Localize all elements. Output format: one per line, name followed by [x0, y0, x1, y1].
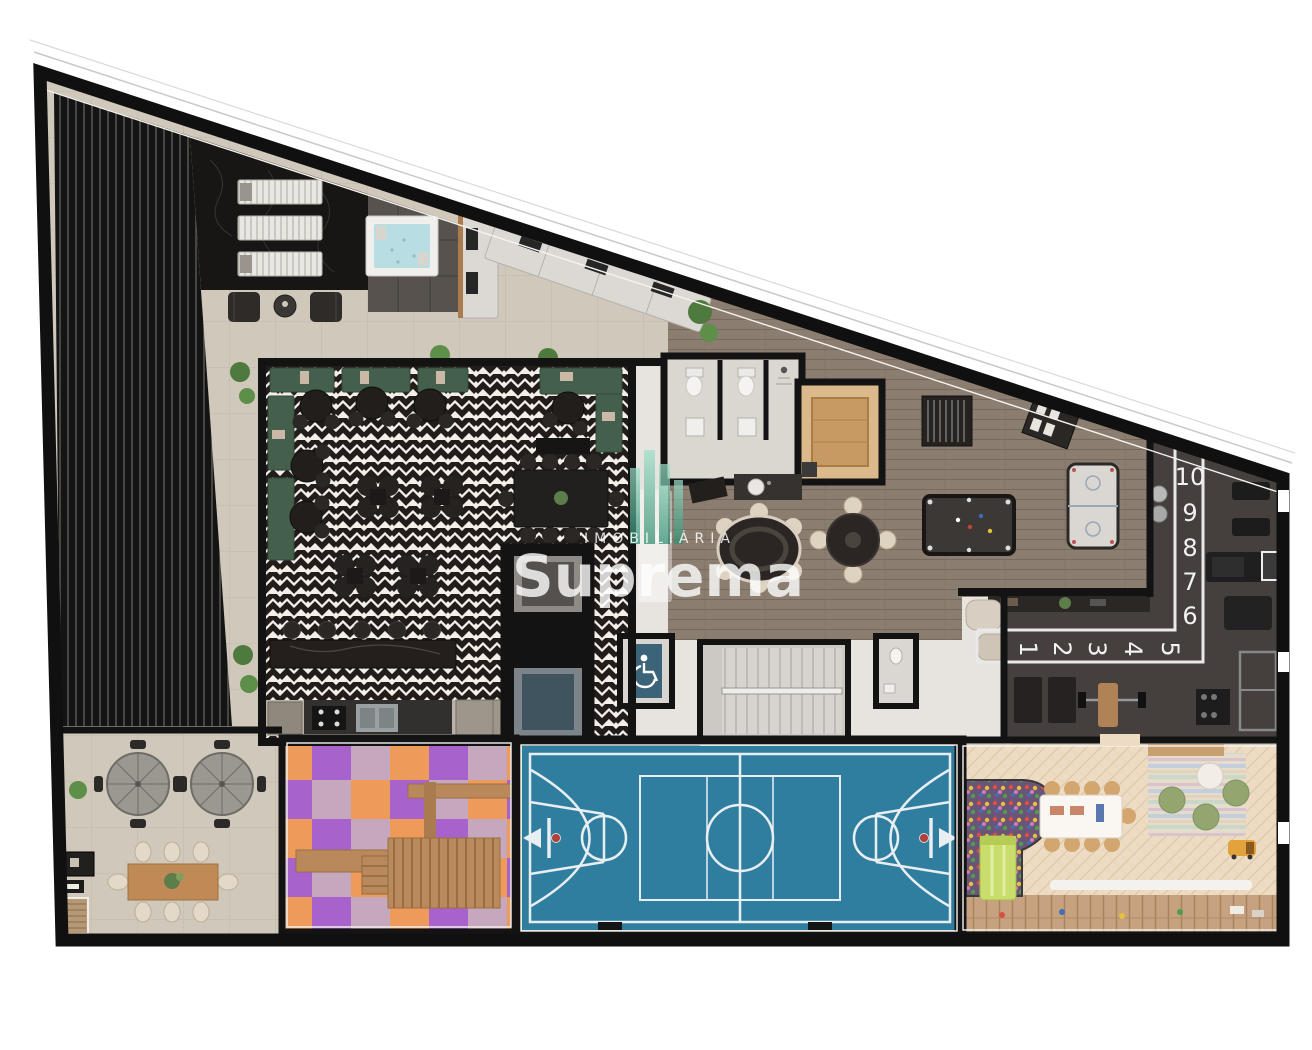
kids-bench [1050, 880, 1252, 890]
cue-rack [922, 396, 972, 446]
playground [286, 742, 516, 930]
track-marker-4: 4 [1119, 641, 1147, 656]
kids-round-table [1197, 763, 1223, 789]
track-marker-6: 6 [1182, 602, 1197, 630]
barbell-rack [1232, 482, 1270, 500]
track-marker-3: 3 [1083, 641, 1111, 656]
sauna [798, 382, 882, 482]
terrace-armchairs [228, 292, 342, 322]
floorplan-svg: 10 9 8 7 6 1 2 3 4 5 [0, 0, 1312, 1050]
kids-slide [980, 836, 1016, 900]
cooktop [312, 706, 346, 730]
gym-mat [1014, 677, 1042, 723]
sauna-heater [802, 462, 817, 477]
barbell-rack-2 [1232, 518, 1270, 536]
treadmill [1206, 552, 1280, 582]
sports-court [522, 746, 958, 930]
weight-machine [1224, 596, 1272, 630]
track-marker-7: 7 [1182, 568, 1197, 596]
track-marker-5: 5 [1156, 641, 1184, 656]
gym-mat-2 [1048, 677, 1076, 723]
kids-door-opening [1100, 734, 1140, 746]
kids-playroom [962, 744, 1283, 933]
track-marker-1: 1 [1014, 641, 1042, 656]
credenza [536, 438, 590, 454]
hot-tub [366, 216, 438, 276]
games-bar-counter [988, 595, 1150, 612]
restrooms [664, 356, 802, 482]
sun-loungers [238, 180, 322, 276]
service-wc [876, 636, 916, 706]
stairwell [700, 642, 848, 740]
accessible-wc [620, 636, 672, 706]
billiards-table [924, 496, 1014, 554]
kitchen-counter [266, 700, 530, 736]
washbasin-counter [734, 474, 802, 500]
bar-counter [270, 622, 456, 669]
air-hockey-table [1068, 464, 1118, 548]
track-marker-2: 2 [1048, 641, 1076, 656]
track-marker-8: 8 [1182, 534, 1197, 562]
track-marker-9: 9 [1182, 499, 1197, 527]
watermark-brand: Suprema [512, 542, 804, 610]
floorplan-render: 10 9 8 7 6 1 2 3 4 5 [0, 0, 1312, 1050]
